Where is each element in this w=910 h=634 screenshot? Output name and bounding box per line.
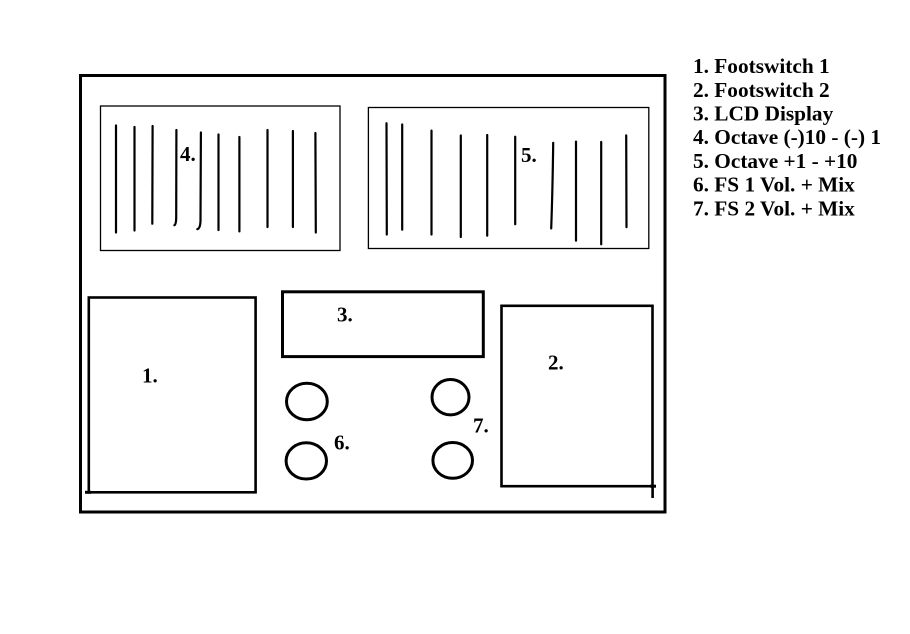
- svg-text:1. Footswitch 1: 1. Footswitch 1: [693, 54, 830, 78]
- svg-text:5. Octave +1 - +10: 5. Octave +1 - +10: [693, 149, 857, 173]
- svg-text:7.: 7.: [473, 414, 489, 438]
- svg-text:2.: 2.: [548, 351, 564, 375]
- svg-text:4.: 4.: [180, 142, 196, 166]
- svg-text:3. LCD Display: 3. LCD Display: [693, 102, 834, 126]
- svg-text:6.: 6.: [334, 431, 350, 455]
- svg-text:3.: 3.: [337, 303, 353, 327]
- svg-text:1.: 1.: [142, 364, 158, 388]
- svg-text:6. FS 1 Vol. + Mix: 6. FS 1 Vol. + Mix: [693, 173, 855, 197]
- svg-text:2. Footswitch 2: 2. Footswitch 2: [693, 78, 830, 102]
- svg-text:7. FS 2 Vol. + Mix: 7. FS 2 Vol. + Mix: [693, 196, 855, 220]
- svg-text:5.: 5.: [521, 143, 537, 167]
- svg-text:4. Octave (-)10 - (-) 1: 4. Octave (-)10 - (-) 1: [693, 125, 881, 149]
